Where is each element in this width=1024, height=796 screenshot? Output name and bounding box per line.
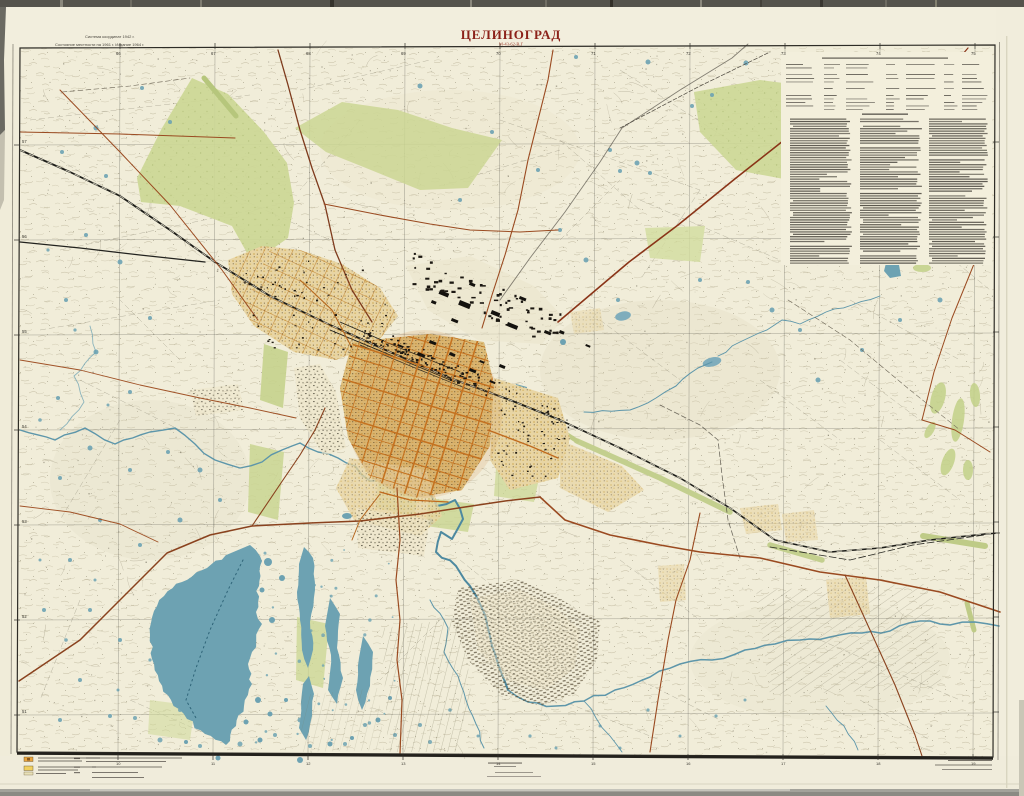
svg-text:55: 55 [22, 329, 27, 334]
svg-text:74: 74 [876, 51, 881, 56]
svg-text:14: 14 [496, 761, 501, 766]
svg-text:54: 54 [22, 424, 27, 429]
svg-text:73: 73 [781, 51, 786, 56]
svg-text:Система координат 1942 г.: Система координат 1942 г. [85, 34, 135, 39]
svg-text:53: 53 [22, 519, 27, 524]
svg-text:51: 51 [22, 709, 27, 714]
svg-text:70: 70 [496, 51, 501, 56]
svg-text:72: 72 [686, 51, 691, 56]
svg-text:69: 69 [401, 51, 406, 56]
svg-text:15: 15 [591, 761, 596, 766]
svg-text:13: 13 [401, 761, 406, 766]
svg-text:19: 19 [971, 761, 976, 766]
svg-text:67: 67 [211, 51, 216, 56]
svg-text:68: 68 [306, 51, 311, 56]
svg-text:16: 16 [686, 761, 691, 766]
svg-text:52: 52 [22, 614, 27, 619]
svg-text:10: 10 [116, 761, 121, 766]
svg-text:56: 56 [22, 234, 27, 239]
svg-text:17: 17 [781, 761, 786, 766]
svg-text:71: 71 [591, 51, 596, 56]
svg-text:ЦЕЛИНОГРАД: ЦЕЛИНОГРАД [461, 27, 562, 42]
svg-text:12: 12 [306, 761, 311, 766]
svg-text:66: 66 [116, 51, 121, 56]
svg-text:Состояние местности на 1961 г.: Состояние местности на 1961 г. Издание 1… [55, 42, 144, 47]
svg-text:57: 57 [22, 139, 27, 144]
svg-text:75: 75 [971, 51, 976, 56]
svg-text:18: 18 [876, 761, 881, 766]
